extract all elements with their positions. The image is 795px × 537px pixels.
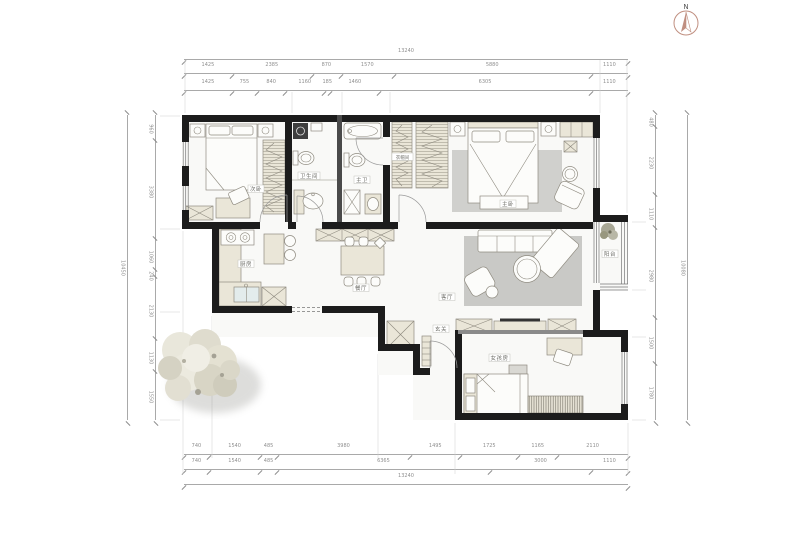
bathtub [344,123,381,139]
room-label: 厨房 [240,260,252,268]
nightstand [190,124,205,137]
stove [221,230,254,245]
room-label: 玄关 [435,325,447,333]
washing-machine [293,123,308,139]
room-label: 客厅 [441,293,453,301]
wardrobe [263,140,285,214]
nightstand [541,122,556,136]
tv [500,319,540,322]
dining-table [341,246,384,275]
chair [344,277,353,286]
room-label: 次卧 [250,185,262,193]
sink [365,194,381,214]
shower [344,190,360,214]
room-label: 主卫 [356,176,368,184]
cabinet [387,321,414,348]
tree [158,329,261,413]
kitchen-sink [234,284,259,302]
stool [285,236,296,247]
chair [345,237,354,246]
shelf [311,123,322,131]
nightstand [450,122,465,136]
wardrobe [528,396,583,413]
nightstand [509,365,527,374]
floor-plan-canvas: N 13240 14252385870157058801110 14257558… [0,0,795,537]
closet-label: 衣帽间 [396,154,410,161]
dresser [560,122,593,137]
stool [564,141,577,152]
stool [285,250,296,261]
bed [468,122,538,209]
room-label: 女孩房 [490,354,508,362]
room-label: 主卧 [502,200,514,208]
cabinet [262,287,286,306]
room-label: 卫生间 [300,172,318,180]
island [264,234,284,264]
floor-plan-drawing: 次卧 卫生间 [0,0,795,537]
nightstand [258,124,273,137]
closet-rack [416,122,448,188]
chair [371,277,380,286]
side-table [486,286,498,298]
room-label: 餐厅 [355,284,367,292]
cabinet [186,206,213,220]
room-label: 阳台 [604,250,616,258]
toilet [293,151,314,165]
chair [359,237,368,246]
bed [464,374,528,414]
bed [206,124,257,190]
coffee-table [514,256,541,283]
